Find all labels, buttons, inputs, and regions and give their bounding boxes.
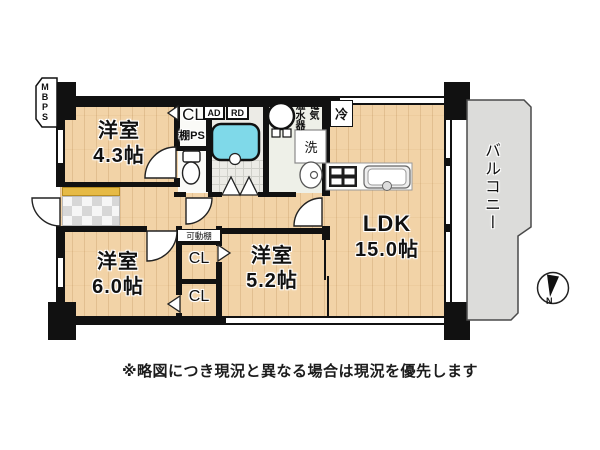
door-arc-toilet xyxy=(186,198,212,224)
closet-bottom-label: CL xyxy=(181,288,217,306)
toilet-icon xyxy=(183,162,200,184)
room-name: LDK xyxy=(330,210,444,238)
room-label-4-3: 洋室 4.3帖 xyxy=(63,119,175,169)
closet-top-label: CL xyxy=(181,250,217,268)
stove-burner xyxy=(331,178,342,185)
ad-vent-label: AD xyxy=(203,105,225,120)
room-name: 洋室 xyxy=(222,244,322,269)
room-label-ldk: LDK 15.0帖 xyxy=(330,210,444,263)
door-arc-ldk xyxy=(294,198,322,226)
bathtub-drain xyxy=(230,154,241,165)
stove-burner xyxy=(331,168,342,175)
compass-north-label: N xyxy=(546,296,553,306)
fridge-label: 冷 xyxy=(330,100,353,127)
room-name: 洋室 xyxy=(60,250,176,275)
electric-label: 電気 xyxy=(305,100,320,134)
entrance-door-arc xyxy=(32,198,60,226)
ad-text: AD xyxy=(208,108,221,118)
floorplan-canvas: N 洋室 4.3帖 洋室 6.0帖 洋室 5.2帖 LDK 15.0帖 CL 棚… xyxy=(0,0,600,450)
water-heater-foot xyxy=(272,129,280,137)
sink-drain xyxy=(383,182,392,191)
room-size: 5.2帖 xyxy=(222,269,322,294)
toilet-tank xyxy=(183,151,200,162)
washer-label: 洗 xyxy=(296,137,326,156)
movable-shelf-text: 可動棚 xyxy=(186,230,212,242)
room-label-6-0: 洋室 6.0帖 xyxy=(60,250,176,300)
water-heater-foot xyxy=(283,129,291,137)
room-size: 15.0帖 xyxy=(330,238,444,263)
shelf-ps-label: 棚PS xyxy=(171,127,213,143)
movable-shelf-label: 可動棚 xyxy=(177,229,221,242)
washbasin-faucet xyxy=(311,172,318,179)
room-name: 洋室 xyxy=(63,119,175,144)
plan-symbols: N xyxy=(0,0,600,450)
room-size: 6.0帖 xyxy=(60,275,176,300)
bath-folding-door xyxy=(222,177,258,195)
stove-burner xyxy=(344,178,355,185)
rd-vent-label: RD xyxy=(226,105,249,120)
stove-burner xyxy=(344,168,355,175)
mbps-label: MBPS xyxy=(39,82,50,126)
balcony-label: バルコニー xyxy=(478,142,502,262)
room-label-5-2: 洋室 5.2帖 xyxy=(222,244,322,294)
rd-text: RD xyxy=(231,108,244,118)
fridge-text: 冷 xyxy=(335,104,348,123)
room-size: 4.3帖 xyxy=(63,144,175,169)
disclaimer-caption: ※略図につき現況と異なる場合は現況を優先します xyxy=(0,360,600,381)
